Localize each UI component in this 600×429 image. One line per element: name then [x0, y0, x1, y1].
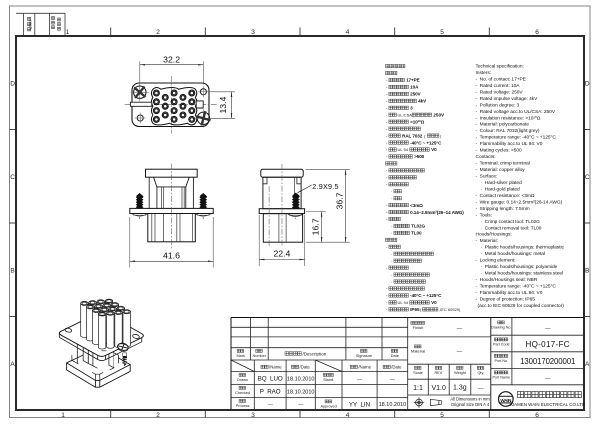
svg-text:UL 94: UL 94	[398, 300, 409, 305]
svg-text:- No. of contact: 17+PE: - No. of contact: 17+PE	[476, 76, 527, 82]
svg-text:—: —	[298, 402, 303, 408]
svg-text:- Contact resistance: <3mΩ: - Contact resistance: <3mΩ	[476, 193, 535, 199]
svg-text:- Terminal: crimp terminal: - Terminal: crimp terminal	[476, 161, 530, 167]
svg-text:10A: 10A	[410, 85, 419, 90]
svg-text:Original Size DIN A 4: Original Size DIN A 4	[451, 402, 490, 407]
svg-text:5: 5	[440, 412, 444, 419]
svg-text:2.9X9.5: 2.9X9.5	[312, 182, 339, 191]
svg-text:- Wire gauge: 0.14~2.5mm²(26-: - Wire gauge: 0.14~2.5mm²(26-14 AWG)	[476, 199, 563, 205]
svg-text:1:1: 1:1	[413, 385, 423, 392]
svg-text:3: 3	[251, 412, 255, 419]
svg-text:C: C	[585, 174, 590, 181]
svg-text:5: 5	[440, 29, 444, 36]
svg-text:—: —	[357, 376, 362, 382]
svg-text:D: D	[10, 80, 15, 87]
svg-text:1300170200001: 1300170200001	[520, 357, 575, 366]
svg-text:/Name: /Name	[269, 365, 282, 370]
svg-text:A: A	[10, 361, 15, 368]
svg-text:Process: Process	[236, 404, 250, 408]
svg-text:- Locking element:: - Locking element:	[476, 258, 516, 264]
svg-text:- Insulation resistance: >10¹: - Insulation resistance: >10¹ºΩ	[476, 115, 541, 121]
svg-text:13.4: 13.4	[218, 96, 228, 113]
svg-text:—: —	[457, 326, 463, 332]
svg-text:>10¹ºΩ: >10¹ºΩ	[410, 119, 424, 124]
svg-text:—: —	[545, 326, 551, 332]
svg-text:·: ·	[391, 279, 392, 284]
svg-text:1.3g: 1.3g	[453, 384, 467, 391]
svg-text:- Pollution degree: 3: - Pollution degree: 3	[476, 102, 520, 108]
svg-text:- Colour: RAL 7032(light grey: - Colour: RAL 7032(light grey)	[476, 128, 540, 134]
svg-text:IP65: IP65	[410, 307, 420, 312]
svg-text:—: —	[478, 385, 484, 391]
svg-text:/Date: /Date	[391, 365, 402, 370]
svg-text:- Temperature range: -40°C ~: - Temperature range: -40°C ~ +125°C	[476, 283, 557, 289]
svg-text:· Plastic hoods/housings: the: · Plastic hoods/housings: thermoplastic	[481, 245, 565, 251]
svg-text:Mark: Mark	[236, 354, 245, 358]
svg-text:2: 2	[156, 412, 160, 419]
svg-text:V0: V0	[431, 300, 437, 305]
svg-text:Date: Date	[391, 354, 399, 358]
svg-text:- Flammability acc.to UL 94:: - Flammability acc.to UL 94: V0	[476, 290, 543, 296]
svg-text:Drawn: Drawn	[237, 378, 248, 382]
svg-text:- Tools:: - Tools:	[476, 212, 492, 218]
svg-text:Insters:: Insters:	[476, 70, 491, 76]
svg-text:B: B	[585, 267, 589, 274]
svg-text:17+PE: 17+PE	[406, 78, 419, 83]
svg-text:- Material: polycarbonate: - Material: polycarbonate	[476, 122, 530, 128]
svg-text:· Metal hoods/housings: stain: · Metal hoods/housings: stainless steel	[481, 271, 564, 277]
svg-text:- Rated voltage acc.to UL/CSA: - Rated voltage acc.to UL/CSA: 250V	[476, 109, 556, 115]
svg-text:22.4: 22.4	[273, 249, 290, 259]
svg-text:UL/CSA: UL/CSA	[398, 112, 413, 117]
svg-text:- Material: copper alloy: - Material: copper alloy	[476, 167, 526, 173]
svg-text:Qty.: Qty.	[477, 371, 484, 375]
svg-text:P RAO: P RAO	[260, 389, 281, 396]
svg-text:41.6: 41.6	[163, 251, 180, 261]
svg-text:REV.: REV.	[434, 371, 443, 375]
svg-text:0.14~2.5mm²(26~14 AWG): 0.14~2.5mm²(26~14 AWG)	[410, 210, 464, 215]
svg-text:· Metal hoods/housings: metal: · Metal hoods/housings: metal	[481, 251, 545, 257]
svg-text:A: A	[585, 361, 590, 368]
svg-text:Drawing No.: Drawing No.	[491, 325, 511, 329]
svg-text:/Name: /Name	[358, 365, 371, 370]
svg-text:Port Name: Port Name	[492, 375, 510, 379]
svg-text:250V: 250V	[433, 112, 445, 117]
svg-text:- Rated impulse voltage: 4kV: - Rated impulse voltage: 4kV	[476, 96, 539, 102]
svg-text:a/Date: a/Date	[28, 20, 32, 30]
svg-text:- Degree of protection: IP65: - Degree of protection: IP65	[476, 296, 536, 302]
svg-text:· Contact removal tool: TL00: · Contact removal tool: TL00	[481, 225, 542, 231]
svg-text:· Hard-gold plated: · Hard-gold plated	[481, 186, 521, 192]
svg-text:·: ·	[391, 272, 392, 277]
svg-text:All Dimensions in mm: All Dimensions in mm	[450, 397, 490, 402]
svg-text:YY LIN: YY LIN	[349, 401, 370, 408]
svg-text:- Rated current: 10A: - Rated current: 10A	[476, 83, 521, 89]
svg-text:XIAMEN WAIN ELECTRICAL CO.LTD: XIAMEN WAIN ELECTRICAL CO.LTD	[510, 402, 585, 407]
svg-text:18.10.2010: 18.10.2010	[287, 376, 315, 382]
svg-text:4: 4	[346, 412, 350, 419]
svg-text:,IEC 60529): ,IEC 60529)	[439, 307, 461, 312]
svg-text:D: D	[585, 80, 590, 87]
svg-text:36.7: 36.7	[334, 192, 344, 209]
svg-text:—: —	[390, 376, 395, 382]
svg-text:Finish: Finish	[413, 325, 424, 330]
svg-text:C: C	[10, 174, 15, 181]
svg-text:4kV: 4kV	[418, 99, 427, 104]
svg-text:· Hard-silver plated: · Hard-silver plated	[481, 180, 523, 186]
svg-text:16.7: 16.7	[310, 218, 320, 235]
svg-text:- Temperature range: -40°C ~: - Temperature range: -40°C ~ +125°C	[476, 135, 557, 141]
svg-text:UL 94: UL 94	[398, 147, 409, 152]
svg-text:18.10.2010: 18.10.2010	[379, 402, 407, 408]
svg-text:TL02G: TL02G	[411, 224, 425, 229]
svg-text:- Material:: - Material:	[476, 238, 498, 244]
svg-text:· Crimp contact tool: TL02G: · Crimp contact tool: TL02G	[481, 219, 541, 225]
svg-text:· Plastic hoods/housings: pol: · Plastic hoods/housings: polyamide	[481, 264, 558, 270]
svg-text:—: —	[268, 402, 273, 408]
svg-text:1: 1	[66, 29, 70, 36]
svg-text:18.10.2010: 18.10.2010	[287, 389, 315, 395]
svg-text:<3mΩ: <3mΩ	[410, 203, 423, 208]
svg-text:- Flammability acc.to UL 94:: - Flammability acc.to UL 94: V0	[476, 141, 543, 147]
svg-text:/Description: /Description	[302, 351, 326, 356]
svg-text:RAL 7032: RAL 7032	[402, 133, 423, 138]
svg-text:-40°C ~ +125°C: -40°C ~ +125°C	[410, 140, 442, 145]
svg-text:·: ·	[391, 196, 392, 201]
svg-text:·: ·	[391, 251, 392, 256]
svg-text:Contacts:: Contacts:	[476, 154, 496, 160]
svg-text:Scale: Scale	[413, 371, 423, 375]
svg-text:6: 6	[535, 412, 539, 419]
svg-text:Port No.: Port No.	[495, 359, 509, 363]
svg-text:·: ·	[391, 258, 392, 263]
svg-text:·: ·	[391, 231, 392, 236]
svg-text:Hoods/Housings:: Hoods/Housings:	[476, 232, 512, 238]
svg-text:-40°C ~ +125°C: -40°C ~ +125°C	[410, 293, 442, 298]
svg-text:Weight: Weight	[454, 371, 467, 375]
svg-text:Material: Material	[411, 348, 425, 353]
svg-text:·: ·	[391, 224, 392, 229]
svg-text:(acc.to IEC 60529 for coupled: (acc.to IEC 60529 for coupled connector)	[478, 303, 565, 309]
svg-text:/Date: /Date	[300, 365, 311, 370]
svg-text:32.2: 32.2	[163, 55, 180, 65]
svg-text:4: 4	[346, 29, 350, 36]
svg-text:>500: >500	[414, 154, 424, 159]
svg-text:BQ LUO: BQ LUO	[258, 376, 283, 383]
svg-text:Checked: Checked	[235, 391, 250, 395]
svg-text:6: 6	[535, 29, 539, 36]
svg-text:Part Code: Part Code	[493, 342, 510, 346]
svg-text:·: ·	[391, 189, 392, 194]
svg-text:1: 1	[61, 412, 65, 419]
svg-text:2: 2	[156, 29, 160, 36]
svg-text:—: —	[545, 376, 551, 382]
svg-text:- Surface:: - Surface:	[476, 173, 498, 179]
svg-text:Stand.: Stand.	[323, 378, 334, 382]
svg-text:Technical specification:: Technical specification:	[476, 64, 524, 70]
svg-text:Signature: Signature	[356, 354, 372, 358]
svg-text:—: —	[457, 349, 463, 355]
svg-text:250V: 250V	[410, 92, 421, 97]
svg-text:V0: V0	[431, 147, 437, 152]
svg-text:- Mating cycles: >500: - Mating cycles: >500	[476, 148, 523, 154]
svg-text:Number: Number	[253, 354, 267, 358]
svg-text:HQ-017-FC: HQ-017-FC	[525, 340, 570, 349]
svg-text:Approved: Approved	[320, 404, 336, 408]
svg-text:B: B	[10, 267, 14, 274]
svg-text:3: 3	[251, 29, 255, 36]
svg-text:- Rated voltage: 250V: - Rated voltage: 250V	[476, 89, 524, 95]
svg-text:V1.0: V1.0	[431, 385, 446, 392]
svg-text:- Hoods/Housings seal: NBR: - Hoods/Housings seal: NBR	[476, 277, 538, 283]
svg-text:- Stripping length: 7.5mm: - Stripping length: 7.5mm	[476, 206, 530, 212]
svg-text:TL00: TL00	[411, 231, 422, 236]
